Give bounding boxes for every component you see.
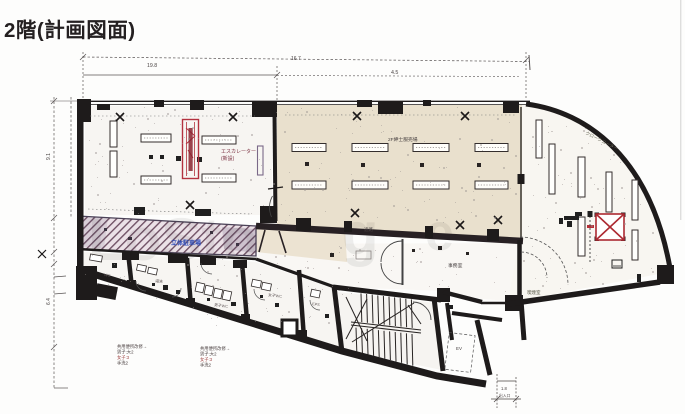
svg-text:手洗2: 手洗2 (200, 362, 212, 369)
svg-text:喫煙室: 喫煙室 (527, 289, 541, 296)
svg-text:事務室: 事務室 (448, 262, 463, 269)
svg-text:エスカレーター: エスカレーター (221, 148, 256, 155)
svg-text:手洗2: 手洗2 (117, 360, 129, 367)
svg-text:4.5: 4.5 (391, 70, 398, 76)
svg-text:(新設): (新設) (221, 155, 235, 162)
svg-text:出入口: 出入口 (499, 393, 511, 398)
svg-text:1.8: 1.8 (501, 386, 507, 391)
svg-text:9.1: 9.1 (46, 153, 52, 160)
svg-text:2F紳士服売場: 2F紳士服売場 (388, 136, 418, 143)
svg-text:6.4: 6.4 (46, 298, 52, 305)
svg-text:19.8: 19.8 (147, 63, 157, 69)
svg-text:16.7: 16.7 (291, 56, 301, 62)
svg-text:EV: EV (456, 346, 462, 351)
svg-text:2階(計画図面): 2階(計画図面) (4, 18, 136, 42)
svg-text:通路: 通路 (364, 226, 373, 233)
